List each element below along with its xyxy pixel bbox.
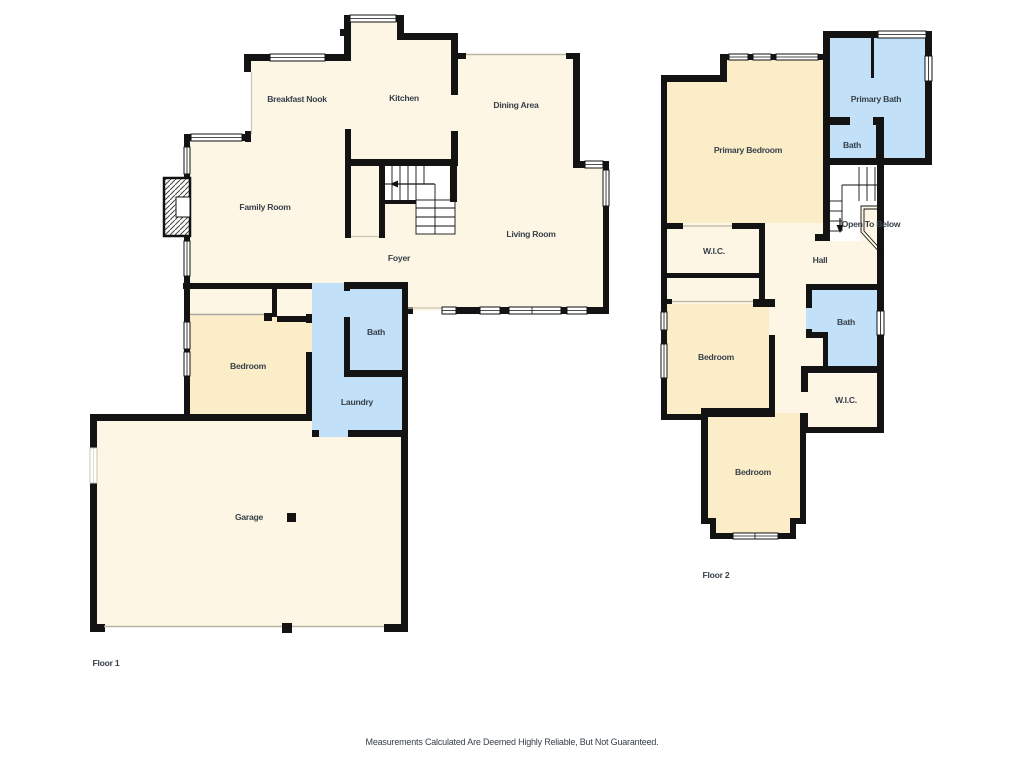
svg-text:Bath: Bath <box>843 140 861 150</box>
svg-text:Hall: Hall <box>813 255 828 265</box>
svg-text:Living Room: Living Room <box>506 229 556 239</box>
svg-text:Kitchen: Kitchen <box>389 93 419 103</box>
svg-text:W.I.C.: W.I.C. <box>835 395 857 405</box>
svg-text:Foyer: Foyer <box>388 253 411 263</box>
svg-text:Dining Area: Dining Area <box>493 100 539 110</box>
svg-text:Floor 2: Floor 2 <box>703 570 730 580</box>
svg-text:Family Room: Family Room <box>239 202 291 212</box>
svg-text:Bath: Bath <box>367 327 385 337</box>
svg-text:Floor 1: Floor 1 <box>93 658 120 668</box>
svg-text:Bedroom: Bedroom <box>230 361 267 371</box>
svg-text:Primary Bedroom: Primary Bedroom <box>714 145 783 155</box>
svg-text:W.I.C.: W.I.C. <box>703 246 725 256</box>
svg-text:Open To Below: Open To Below <box>842 219 901 229</box>
svg-text:Bedroom: Bedroom <box>698 352 735 362</box>
svg-text:Primary Bath: Primary Bath <box>851 94 902 104</box>
svg-text:Measurements Calculated Are De: Measurements Calculated Are Deemed Highl… <box>366 737 659 747</box>
svg-text:Laundry: Laundry <box>341 397 374 407</box>
svg-text:Bedroom: Bedroom <box>735 467 772 477</box>
svg-text:Bath: Bath <box>837 317 855 327</box>
svg-text:Breakfast Nook: Breakfast Nook <box>267 94 327 104</box>
svg-text:Garage: Garage <box>235 512 264 522</box>
